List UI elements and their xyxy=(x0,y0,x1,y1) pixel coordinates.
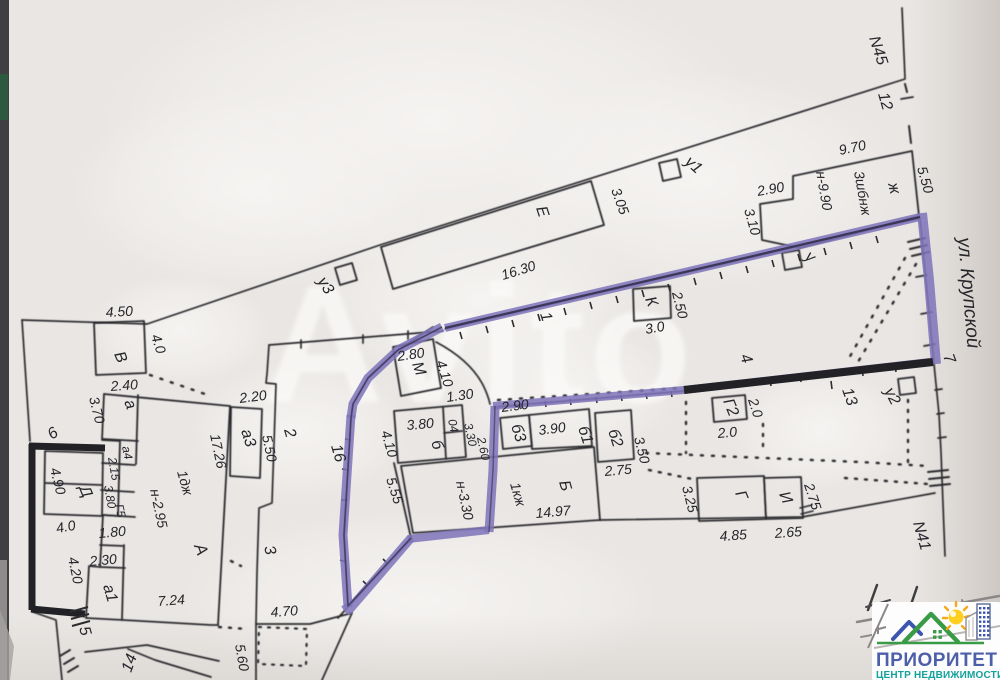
svg-text:1.80: 1.80 xyxy=(98,523,127,541)
svg-text:4.0: 4.0 xyxy=(55,517,77,536)
svg-text:2.0: 2.0 xyxy=(716,423,738,441)
svg-text:4.50: 4.50 xyxy=(105,303,133,320)
svg-text:3.80: 3.80 xyxy=(406,415,435,433)
svg-text:14.97: 14.97 xyxy=(535,502,573,521)
svg-text:4.70: 4.70 xyxy=(270,602,299,620)
svg-text:2.40: 2.40 xyxy=(109,376,139,394)
svg-text:7.24: 7.24 xyxy=(157,591,186,609)
svg-text:2.65: 2.65 xyxy=(773,523,803,541)
svg-text:4.85: 4.85 xyxy=(719,526,748,544)
svg-text:3.90: 3.90 xyxy=(537,419,566,438)
svg-text:2.75: 2.75 xyxy=(603,461,633,479)
svg-text:ПРИОРИТЕТ: ПРИОРИТЕТ xyxy=(876,650,997,671)
svg-text:3.0: 3.0 xyxy=(644,318,666,337)
svg-text:2.30: 2.30 xyxy=(88,551,118,569)
svg-text:ЦЕНТР НЕДВИЖИМОСТИ: ЦЕНТР НЕДВИЖИМОСТИ xyxy=(876,670,1000,680)
